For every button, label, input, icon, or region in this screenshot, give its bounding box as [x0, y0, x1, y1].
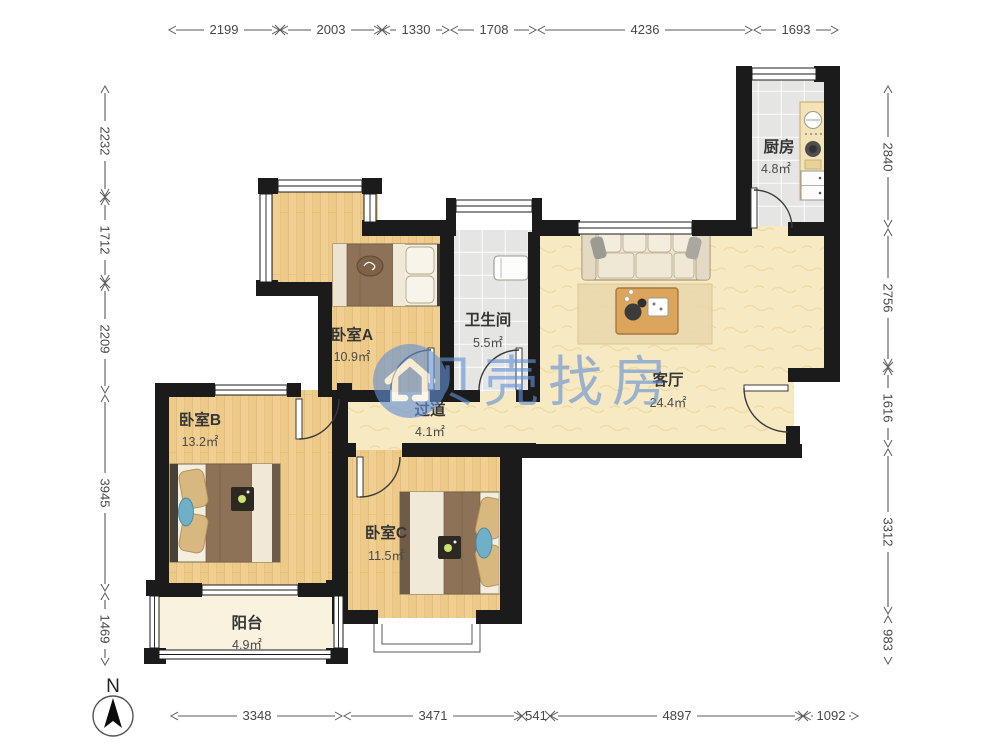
round-pillow: [179, 498, 194, 526]
knob: [810, 133, 812, 135]
wall-segment: [500, 456, 522, 624]
room-area-bedroom-c: 11.5㎡: [368, 549, 404, 563]
bedside-dot: [247, 491, 250, 494]
dim-label: 2199: [210, 22, 239, 37]
bed-runner: [393, 244, 405, 306]
living-rug-table: [578, 284, 712, 344]
brand-text: 贝壳找房: [420, 351, 676, 413]
dim-label: 3312: [881, 518, 896, 547]
wall-segment: [736, 66, 752, 236]
tray: [648, 298, 668, 316]
wall-segment: [337, 383, 352, 397]
wall-segment: [824, 66, 840, 236]
bathroom-fixture: [494, 256, 528, 280]
bedroom-b-window: [215, 385, 287, 395]
room-name-kitchen: 厨房: [763, 137, 794, 156]
dimension-left: 2232 1712 2209 3945 1469: [98, 86, 113, 665]
bed-edge: [400, 492, 410, 594]
room-area-bedroom-b: 13.2㎡: [182, 435, 219, 449]
room-name-bedroom-b: 卧室B: [179, 410, 221, 429]
kitchen-counter: [800, 102, 827, 200]
wall-segment: [362, 178, 382, 194]
bed-b: [170, 464, 280, 562]
wall-segment: [532, 198, 542, 234]
room-name-bathroom: 卫生间: [465, 310, 512, 329]
sofa-cushion: [623, 232, 646, 252]
dimension-right: 2840 2756 1616 3312 983: [881, 86, 896, 664]
dim-label: 4236: [631, 22, 660, 37]
wall-segment: [824, 230, 840, 382]
room-name-bedroom-c: 卧室C: [365, 523, 407, 542]
room-area-kitchen: 4.8㎡: [761, 162, 791, 176]
washer: [494, 256, 528, 280]
dim-label: 2756: [881, 284, 896, 313]
bed-edge: [272, 464, 280, 562]
knob: [815, 133, 817, 135]
bed-runner: [252, 464, 272, 562]
wall-segment: [500, 444, 802, 458]
bedside-lamp: [238, 495, 246, 503]
cabinet-knob: [819, 177, 822, 180]
sofa: [582, 230, 710, 280]
dim-label: 1693: [782, 22, 811, 37]
dim-label: 1616: [881, 394, 896, 423]
wall-segment: [258, 178, 278, 194]
dim-label: 1708: [480, 22, 509, 37]
wall-segment: [318, 282, 332, 397]
dim-label: 2209: [98, 325, 113, 354]
floorplan-canvas: 厨房 4.8㎡ 卧室A 10.9㎡ 卫生间 5.5㎡ 客厅 24.4㎡ 过道 4…: [0, 0, 1000, 750]
wall-segment: [788, 368, 840, 382]
dim-label: 2003: [317, 22, 346, 37]
door-leaf: [357, 457, 363, 497]
dimension-bottom: 3348 3471 541 4897 1092: [171, 708, 858, 723]
teacup: [638, 299, 647, 308]
wall-segment: [476, 610, 522, 624]
sofa-cushion: [648, 232, 671, 252]
tray-item: [653, 303, 656, 306]
door-leaf: [296, 399, 302, 439]
bed-a: [333, 244, 445, 306]
dim-label: 2840: [881, 143, 896, 172]
living-room-window: [578, 222, 692, 234]
dim-tick: [883, 362, 893, 372]
dim-label: 1712: [98, 226, 113, 255]
wall-segment: [155, 383, 169, 597]
wall-segment: [446, 198, 456, 234]
room-name-bedroom-a: 卧室A: [331, 325, 373, 344]
bedside-lamp: [444, 544, 452, 552]
bed-edge: [333, 244, 347, 306]
floorplan-page: 厨房 4.8㎡ 卧室A 10.9㎡ 卫生间 5.5㎡ 客厅 24.4㎡ 过道 4…: [0, 0, 1000, 750]
wall-segment: [146, 580, 164, 596]
room-area-balcony: 4.9㎡: [232, 638, 262, 652]
wall-segment: [692, 220, 740, 236]
dim-label: 3471: [419, 708, 448, 723]
bed-c: [400, 492, 507, 594]
bay-window-bedroom-a-top: [278, 180, 362, 192]
dim-label: 1092: [817, 708, 846, 723]
wall-segment: [326, 580, 346, 596]
wall-segment: [287, 383, 301, 397]
dim-label: 1469: [98, 615, 113, 644]
dim-label: 1330: [402, 22, 431, 37]
round-pillow: [476, 528, 492, 558]
bed-blanket: [206, 464, 252, 562]
dim-label: 541: [525, 708, 547, 723]
sofa-seat: [636, 253, 672, 278]
kitchen-window: [752, 68, 816, 80]
bedside-dot: [454, 541, 457, 544]
dim-label: 4897: [663, 708, 692, 723]
stove-burner: [809, 145, 817, 153]
dim-label: 2232: [98, 127, 113, 156]
bathroom-bay-window: [456, 200, 532, 212]
room-area-bathroom: 5.5㎡: [473, 336, 503, 350]
cutting-board: [805, 160, 821, 169]
north-arrow-icon: [104, 698, 122, 728]
watermark: 贝壳找房: [373, 344, 676, 418]
tray-item: [660, 308, 663, 311]
knob: [805, 133, 807, 135]
room-area-hallway: 4.1㎡: [415, 425, 445, 439]
teacup: [625, 297, 629, 301]
door-leaf: [751, 188, 757, 228]
door-leaf: [744, 385, 788, 391]
knob: [820, 133, 822, 135]
cabinet-knob: [819, 192, 822, 195]
bay-window-bedroom-a-right: [364, 194, 376, 222]
wall-segment: [402, 443, 536, 457]
compass: N: [93, 676, 133, 736]
pillow: [406, 247, 434, 274]
room-area-bedroom-a: 10.9㎡: [334, 350, 371, 364]
bay-window-bedroom-a-left: [260, 194, 272, 282]
north-label: N: [106, 676, 120, 697]
round-pillow: [357, 256, 383, 276]
dim-label: 3348: [243, 708, 272, 723]
bedroom-c-bay-floor: [372, 622, 482, 654]
teacup: [629, 290, 633, 294]
dimension-top: 2199 2003 1330 1708 4236 1693: [169, 22, 838, 37]
headboard: [170, 464, 178, 562]
bedroom-b-balcony-window: [202, 585, 298, 595]
pillow: [406, 276, 434, 303]
dim-label: 3945: [98, 479, 113, 508]
dim-label: 983: [881, 629, 896, 651]
room-name-balcony: 阳台: [231, 613, 262, 632]
